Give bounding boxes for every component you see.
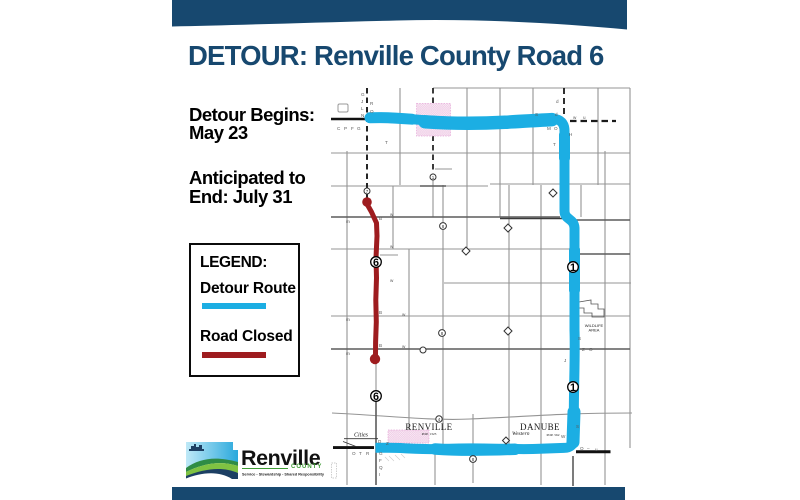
svg-text:6: 6	[373, 391, 379, 403]
svg-text:6: 6	[373, 257, 379, 269]
svg-text:1: 1	[570, 382, 576, 394]
svg-text:R: R	[370, 101, 374, 106]
svg-text:m: m	[346, 219, 350, 224]
svg-text:O: O	[554, 126, 558, 131]
svg-text:1: 1	[570, 262, 576, 274]
svg-text:C: C	[337, 126, 341, 131]
svg-text:AREA: AREA	[589, 328, 600, 333]
svg-text:S: S	[535, 112, 538, 117]
svg-text:Z: Z	[582, 347, 585, 352]
svg-text:S: S	[578, 336, 581, 341]
svg-text:F: F	[379, 458, 382, 463]
svg-text:I: I	[379, 472, 380, 477]
svg-text:M: M	[547, 126, 551, 131]
svg-text:T: T	[359, 451, 362, 456]
svg-text:N: N	[361, 113, 364, 118]
svg-text:m: m	[346, 317, 350, 322]
svg-text:S: S	[576, 424, 579, 429]
svg-text:O: O	[370, 109, 374, 114]
svg-text:O: O	[580, 446, 584, 451]
svg-text:R: R	[366, 451, 370, 456]
svg-text:d: d	[556, 99, 559, 104]
svg-text:u: u	[595, 447, 598, 452]
svg-text:T: T	[385, 140, 388, 145]
svg-text:RENVILLE: RENVILLE	[405, 422, 452, 432]
svg-text:u: u	[583, 115, 586, 120]
svg-text:B: B	[379, 310, 382, 315]
svg-text:W: W	[561, 434, 566, 439]
svg-text:B: B	[379, 216, 382, 221]
svg-text:O: O	[352, 451, 356, 456]
svg-text:Cities: Cities	[354, 433, 369, 439]
svg-text:F: F	[351, 126, 354, 131]
svg-text:d: d	[555, 112, 558, 117]
svg-text:–: –	[587, 446, 590, 451]
svg-text:POP. 1323: POP. 1323	[422, 432, 437, 436]
svg-text:O: O	[589, 347, 593, 352]
svg-text:J: J	[361, 99, 363, 104]
svg-text:J: J	[564, 358, 566, 363]
svg-text:P: P	[344, 126, 347, 131]
svg-text:Z: Z	[386, 441, 389, 446]
svg-text:Q: Q	[379, 465, 383, 470]
svg-text:w: w	[573, 115, 577, 120]
svg-text:G: G	[379, 451, 383, 456]
svg-text:G: G	[361, 92, 365, 97]
svg-text:POP. 562: POP. 562	[546, 433, 559, 437]
svg-text:H: H	[569, 132, 572, 137]
svg-text:Western: Western	[512, 431, 530, 437]
svg-text:L: L	[361, 106, 364, 111]
svg-text:m: m	[346, 351, 350, 356]
svg-text:T: T	[553, 142, 556, 147]
svg-text:B: B	[379, 343, 382, 348]
svg-text:G: G	[357, 126, 361, 131]
svg-text:w: w	[390, 278, 394, 283]
